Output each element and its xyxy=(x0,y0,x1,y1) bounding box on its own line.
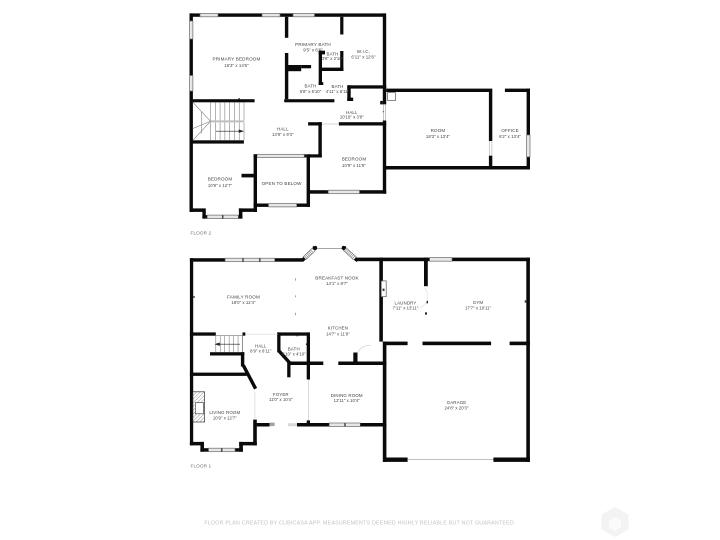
svg-text:18'3" x 13'4": 18'3" x 13'4" xyxy=(426,134,451,139)
svg-text:DINING ROOM: DINING ROOM xyxy=(331,393,363,398)
svg-text:PRIMARY BATH: PRIMARY BATH xyxy=(295,42,331,47)
svg-text:FLOOR 1: FLOOR 1 xyxy=(191,464,212,469)
svg-text:OFFICE: OFFICE xyxy=(501,128,519,133)
svg-text:8'9" x 6'11": 8'9" x 6'11" xyxy=(250,349,272,354)
svg-text:12'11" x 10'4": 12'11" x 10'4" xyxy=(334,398,360,403)
svg-text:W.I.C.: W.I.C. xyxy=(357,49,370,54)
svg-text:14'7" x 11'9": 14'7" x 11'9" xyxy=(326,331,350,336)
svg-text:BREAKFAST NOOK: BREAKFAST NOOK xyxy=(315,276,358,281)
svg-text:5'8" x 5'10": 5'8" x 5'10" xyxy=(300,89,322,94)
svg-text:11'0" x 10'4": 11'0" x 10'4" xyxy=(269,397,293,402)
svg-text:10'9" x 12'7": 10'9" x 12'7" xyxy=(213,416,237,421)
svg-text:3'6" x 2'10": 3'6" x 2'10" xyxy=(322,56,344,61)
svg-text:17'7" x 19'11": 17'7" x 19'11" xyxy=(465,306,491,311)
svg-text:4'10" x 4'10": 4'10" x 4'10" xyxy=(282,351,306,356)
svg-text:PRIMARY BEDROOM: PRIMARY BEDROOM xyxy=(212,57,260,62)
svg-text:10'10" x 3'8": 10'10" x 3'8" xyxy=(340,115,364,120)
svg-text:OPEN TO BELOW: OPEN TO BELOW xyxy=(262,181,302,186)
svg-text:ROOM: ROOM xyxy=(431,128,446,133)
svg-text:4'11" x 6'11": 4'11" x 6'11" xyxy=(326,89,350,94)
svg-text:BATH: BATH xyxy=(332,84,344,89)
svg-text:KITCHEN: KITCHEN xyxy=(328,326,348,331)
svg-text:24'8" x 20'3": 24'8" x 20'3" xyxy=(445,406,469,411)
svg-text:BEDROOM: BEDROOM xyxy=(342,157,367,162)
svg-text:FAMILY ROOM: FAMILY ROOM xyxy=(227,294,260,299)
svg-text:13'9" x 9'3": 13'9" x 9'3" xyxy=(272,132,294,137)
svg-text:14'1" x 8'7": 14'1" x 8'7" xyxy=(326,281,348,286)
svg-text:FLOOR PLAN CREATED BY CUBICASA: FLOOR PLAN CREATED BY CUBICASA APP. MEAS… xyxy=(204,520,515,526)
svg-text:FLOOR 2: FLOOR 2 xyxy=(191,230,212,235)
svg-text:10'9" x 11'9": 10'9" x 11'9" xyxy=(342,163,366,168)
svg-text:BEDROOM: BEDROOM xyxy=(208,177,233,182)
svg-text:GARAGE: GARAGE xyxy=(447,400,467,405)
svg-text:6'2" x 13'4": 6'2" x 13'4" xyxy=(499,134,521,139)
svg-text:HALL: HALL xyxy=(277,127,289,132)
svg-text:6'11" x 12'6": 6'11" x 12'6" xyxy=(351,54,376,59)
svg-text:18'0" x 12'4": 18'0" x 12'4" xyxy=(231,300,256,305)
svg-text:7'11" x 13'11": 7'11" x 13'11" xyxy=(393,306,419,311)
svg-text:LIVING ROOM: LIVING ROOM xyxy=(209,410,240,415)
svg-text:BATH: BATH xyxy=(305,83,317,88)
svg-text:16'3" x 14'6": 16'3" x 14'6" xyxy=(224,63,249,68)
svg-text:GYM: GYM xyxy=(473,300,484,305)
svg-text:10'9" x 12'7": 10'9" x 12'7" xyxy=(208,183,233,188)
